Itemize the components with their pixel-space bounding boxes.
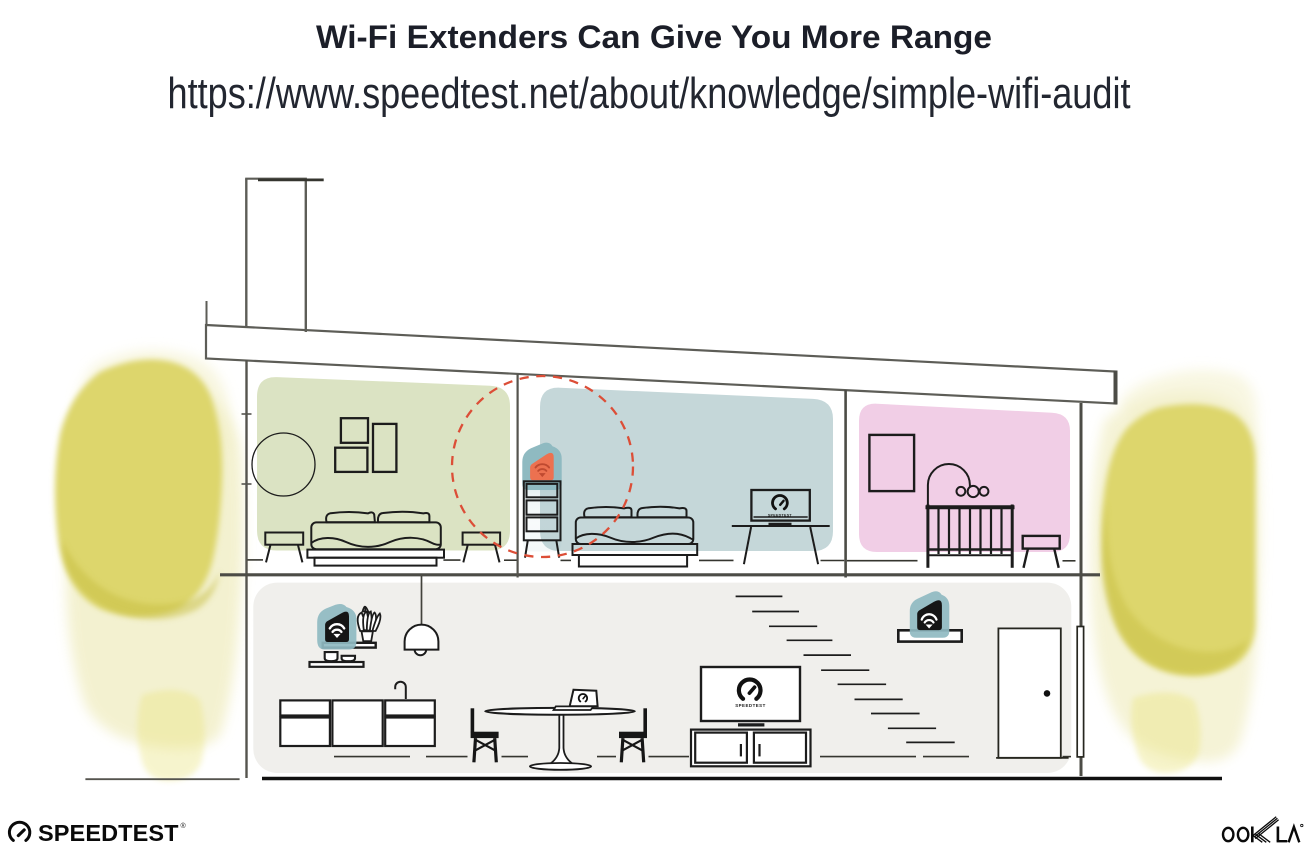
svg-text:https://www.speedtest.net/abou: https://www.speedtest.net/about/knowledg… — [168, 69, 1131, 118]
svg-text:SPEEDTEST: SPEEDTEST — [735, 703, 766, 708]
svg-text:SPEEDTEST: SPEEDTEST — [768, 514, 793, 518]
svg-text:Wi-Fi Extenders Can Give You M: Wi-Fi Extenders Can Give You More Range — [316, 19, 992, 55]
svg-text:SPEEDTEST: SPEEDTEST — [38, 820, 179, 846]
svg-text:®: ® — [181, 822, 187, 830]
